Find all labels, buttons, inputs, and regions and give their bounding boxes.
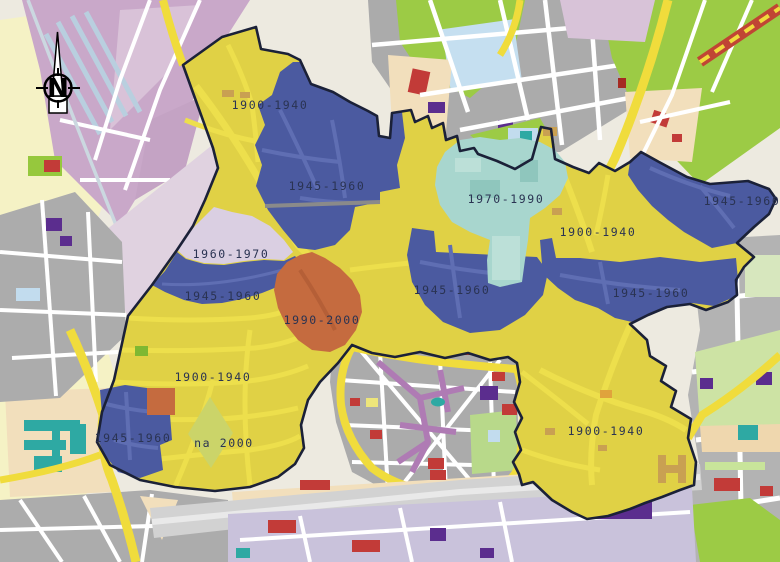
region-label: 1945-1960: [704, 194, 780, 208]
region-label: 1945-1960: [414, 283, 491, 297]
region-label: 1945-1960: [289, 179, 366, 193]
region-1990-2000-small: [147, 388, 175, 415]
region-label: 1945-1960: [95, 431, 172, 445]
region-label: 1990-2000: [284, 313, 361, 327]
region-label: 1900-1940: [232, 98, 309, 112]
region-label: na 2000: [194, 436, 254, 450]
region-label: 1970-1990: [468, 192, 545, 206]
region-label: 1900-1940: [560, 225, 637, 239]
map-canvas[interactable]: 1900-19401945-19601970-19901900-19401945…: [0, 0, 780, 562]
region-label: 1945-1960: [613, 286, 690, 300]
region-label: 1900-1940: [175, 370, 252, 384]
region-label: 1960-1970: [193, 247, 270, 261]
region-label: 1945-1960: [185, 289, 262, 303]
region-label: 1900-1940: [568, 424, 645, 438]
overlay-green-patch: [135, 346, 148, 356]
map-viewport: 1900-19401945-19601970-19901900-19401945…: [0, 0, 780, 562]
compass-label: N: [47, 74, 69, 104]
